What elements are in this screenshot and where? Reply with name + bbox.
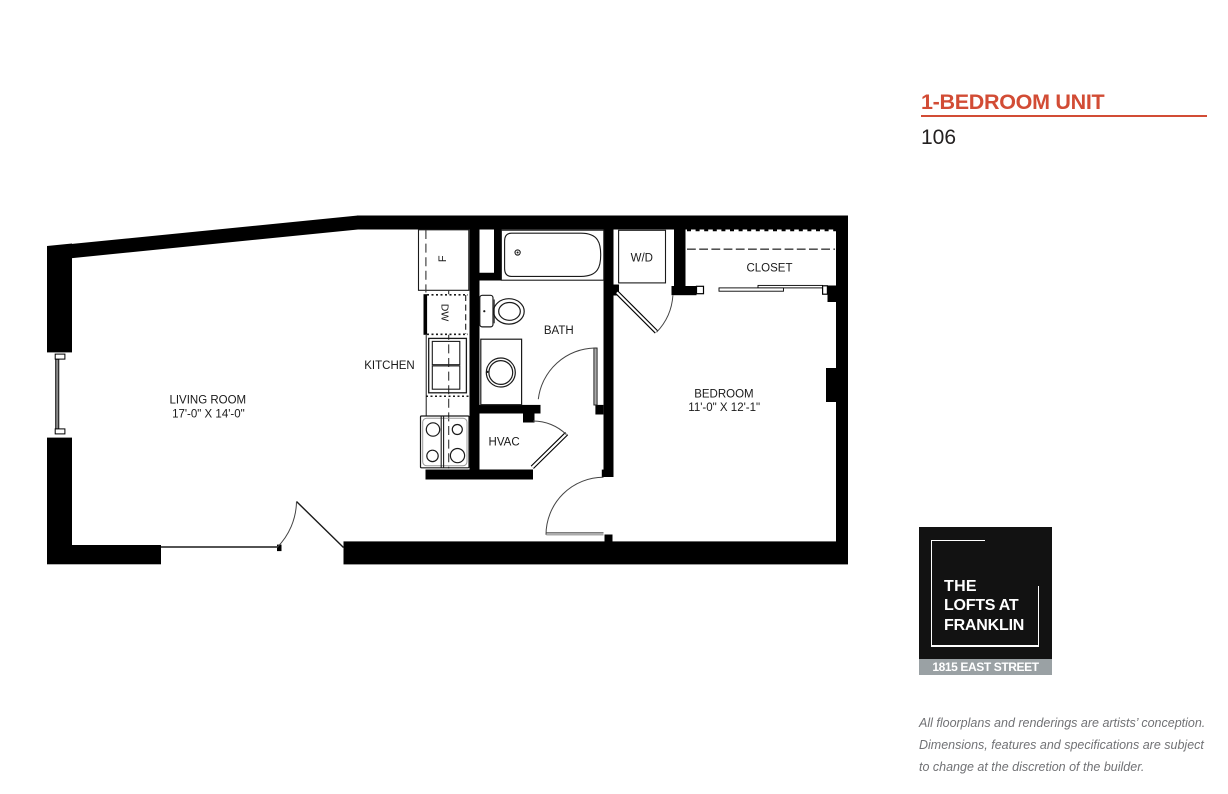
svg-text:DW: DW: [439, 304, 451, 322]
svg-text:F: F: [437, 255, 449, 262]
svg-text:17'-0" X 14'-0": 17'-0" X 14'-0": [172, 408, 245, 420]
svg-text:KITCHEN: KITCHEN: [364, 360, 414, 372]
svg-text:11'-0" X 12'-1": 11'-0" X 12'-1": [688, 402, 760, 414]
svg-text:CLOSET: CLOSET: [746, 263, 792, 275]
svg-text:HVAC: HVAC: [489, 437, 520, 449]
svg-text:BATH: BATH: [544, 325, 574, 337]
svg-text:LIVING ROOM: LIVING ROOM: [169, 394, 246, 406]
svg-text:W/D: W/D: [631, 253, 653, 265]
svg-text:BEDROOM: BEDROOM: [694, 389, 753, 401]
